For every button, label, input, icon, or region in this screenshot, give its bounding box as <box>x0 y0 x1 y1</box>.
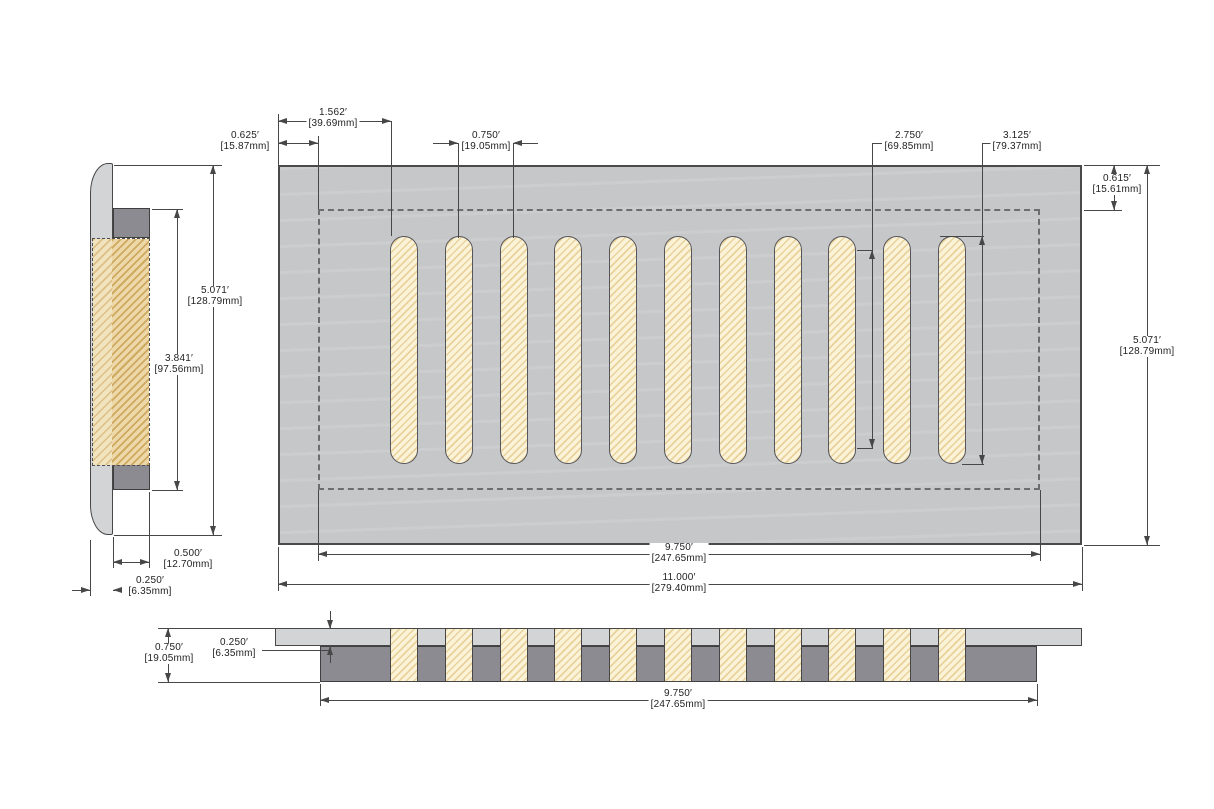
dim-inches: 0.750′ <box>144 643 193 654</box>
dim-label-0750-bottom: 0.750′ [19.05mm] <box>142 643 195 664</box>
arrowhead-icon <box>113 559 122 565</box>
arrowhead-icon <box>278 118 287 124</box>
arrowhead-icon <box>113 587 122 593</box>
extension-line <box>158 628 275 629</box>
slot-section-column <box>609 628 637 682</box>
dim-mm: [19.05mm] <box>144 654 193 665</box>
vent-slot <box>719 236 747 464</box>
arrowhead-icon <box>1144 536 1150 545</box>
extension-line <box>149 492 150 568</box>
dim-mm: [279.40mm] <box>652 584 707 595</box>
dim-label-0250-side: 0.250′ [6.35mm] <box>126 576 173 597</box>
dim-label-0625: 0.625′ [15.87mm] <box>218 131 271 152</box>
leader-line <box>262 650 330 651</box>
side-view-duct-hatch <box>92 238 150 466</box>
arrowhead-icon <box>320 697 329 703</box>
slot-section-column <box>883 628 911 682</box>
dim-label-1562: 1.562′ [39.69mm] <box>306 108 359 129</box>
vent-slot <box>609 236 637 464</box>
slot-section-column <box>774 628 802 682</box>
arrowhead-icon <box>1031 551 1040 557</box>
arrowhead-icon <box>278 581 287 587</box>
dim-label-0615: 0.615′ [15.61mm] <box>1090 174 1143 195</box>
arrowhead-icon <box>81 587 90 593</box>
dim-label-0500: 0.500′ [12.70mm] <box>161 549 214 570</box>
arrowhead-icon <box>449 140 458 146</box>
vent-slot <box>445 236 473 464</box>
extension-line <box>940 236 984 237</box>
drawing-sheet: 1.562′ [39.69mm] 0.625′ [15.87mm] 0.750′… <box>0 0 1214 809</box>
extension-line <box>158 682 320 683</box>
slot-section-column <box>554 628 582 682</box>
dim-mm: [247.65mm] <box>652 554 707 565</box>
leader-line <box>872 143 882 144</box>
dim-mm: [6.35mm] <box>212 649 255 660</box>
arrowhead-icon <box>174 481 180 490</box>
vent-slot <box>664 236 692 464</box>
dim-mm: [128.79mm] <box>188 297 243 308</box>
arrowhead-icon <box>1073 581 1082 587</box>
dim-mm: [97.56mm] <box>154 365 203 376</box>
arrowhead-icon <box>174 209 180 218</box>
dim-label-3841: 3.841′ [97.56mm] <box>152 354 205 375</box>
dimension-line <box>213 165 214 535</box>
extension-line <box>1084 545 1160 546</box>
dim-label-5071-right: 5.071′ [128.79mm] <box>1118 336 1177 357</box>
extension-line <box>113 537 114 568</box>
dim-label-0750-top: 0.750′ [19.05mm] <box>459 131 512 152</box>
slot-section-column <box>390 628 418 682</box>
dim-label-9750-bottom: 9.750′ [247.65mm] <box>649 689 708 710</box>
extension-line <box>391 121 392 236</box>
arrowhead-icon <box>165 628 171 637</box>
dim-mm: [19.05mm] <box>461 142 510 153</box>
side-view-drop-in-top <box>113 208 150 238</box>
side-view-drop-in-bottom <box>113 464 150 490</box>
arrowhead-icon <box>318 551 327 557</box>
dim-inches: 11.000′ <box>652 573 707 584</box>
dim-inches: 9.750′ <box>651 689 706 700</box>
dim-label-5071-side: 5.071′ [128.79mm] <box>186 286 245 307</box>
dim-label-3125: 3.125′ [79.37mm] <box>990 131 1043 152</box>
dim-mm: [79.37mm] <box>992 142 1041 153</box>
dim-inches: 2.750′ <box>884 131 933 142</box>
slot-section-column <box>938 628 966 682</box>
dim-inches: 5.071′ <box>1120 336 1175 347</box>
dim-inches: 0.500′ <box>163 549 212 560</box>
dim-inches: 0.615′ <box>1092 174 1141 185</box>
arrowhead-icon <box>1028 697 1037 703</box>
extension-line <box>1084 210 1122 211</box>
extension-line <box>1082 547 1083 591</box>
dim-label-9750-main: 9.750′ [247.65mm] <box>650 543 709 564</box>
slot-section-column <box>664 628 692 682</box>
vent-slot <box>883 236 911 464</box>
slot-section-column <box>500 628 528 682</box>
dim-inches: 0.250′ <box>128 576 171 587</box>
extension-line <box>90 540 91 596</box>
dimension-line <box>982 143 983 464</box>
arrowhead-icon <box>382 118 391 124</box>
dim-mm: [128.79mm] <box>1120 347 1175 358</box>
dim-inches: 0.250′ <box>212 638 255 649</box>
extension-line <box>318 136 319 209</box>
dim-mm: [12.70mm] <box>163 560 212 571</box>
extension-line <box>962 464 984 465</box>
arrowhead-icon <box>513 140 522 146</box>
vent-slot <box>774 236 802 464</box>
dim-label-2750: 2.750′ [69.85mm] <box>882 131 935 152</box>
vent-slot <box>828 236 856 464</box>
dim-inches: 0.750′ <box>461 131 510 142</box>
hatch-fill <box>112 239 149 465</box>
extension-line <box>114 165 222 166</box>
dim-inches: 9.750′ <box>652 543 707 554</box>
extension-line <box>1037 684 1038 706</box>
arrowhead-icon <box>869 439 875 448</box>
extension-line <box>513 143 514 238</box>
arrowhead-icon <box>278 140 287 146</box>
dim-mm: [39.69mm] <box>308 119 357 130</box>
extension-line <box>857 448 873 449</box>
arrowhead-icon <box>140 559 149 565</box>
arrowhead-icon <box>1144 165 1150 174</box>
dim-mm: [69.85mm] <box>884 142 933 153</box>
arrowhead-icon <box>979 455 985 464</box>
arrowhead-icon <box>327 620 333 629</box>
dim-mm: [15.61mm] <box>1092 185 1141 196</box>
dim-label-11000: 11.000′ [279.40mm] <box>650 573 709 594</box>
vent-slot <box>390 236 418 464</box>
slot-section-column <box>719 628 747 682</box>
vent-slot <box>554 236 582 464</box>
dimension-line <box>872 143 873 448</box>
dim-inches: 3.841′ <box>154 354 203 365</box>
hatch-fill <box>93 239 112 465</box>
arrowhead-icon <box>210 165 216 174</box>
dim-inches: 5.071′ <box>188 286 243 297</box>
extension-line <box>1040 490 1041 561</box>
dim-mm: [15.87mm] <box>220 142 269 153</box>
arrowhead-icon <box>210 526 216 535</box>
dim-inches: 1.562′ <box>308 108 357 119</box>
dim-mm: [6.35mm] <box>128 587 171 598</box>
arrowhead-icon <box>165 673 171 682</box>
extension-line <box>458 143 459 238</box>
arrowhead-icon <box>1111 201 1117 210</box>
arrowhead-icon <box>869 250 875 259</box>
slot-section-column <box>445 628 473 682</box>
dim-mm: [247.65mm] <box>651 700 706 711</box>
arrowhead-icon <box>309 140 318 146</box>
extension-line <box>152 490 183 491</box>
dim-inches: 3.125′ <box>992 131 1041 142</box>
extension-line <box>320 684 321 706</box>
dim-inches: 0.625′ <box>220 131 269 142</box>
vent-slot <box>938 236 966 464</box>
vent-slot <box>500 236 528 464</box>
arrowhead-icon <box>979 236 985 245</box>
slot-section-column <box>828 628 856 682</box>
dim-label-0250-bottom: 0.250′ [6.35mm] <box>210 638 257 659</box>
extension-line <box>114 535 222 536</box>
dimension-line <box>177 209 178 490</box>
